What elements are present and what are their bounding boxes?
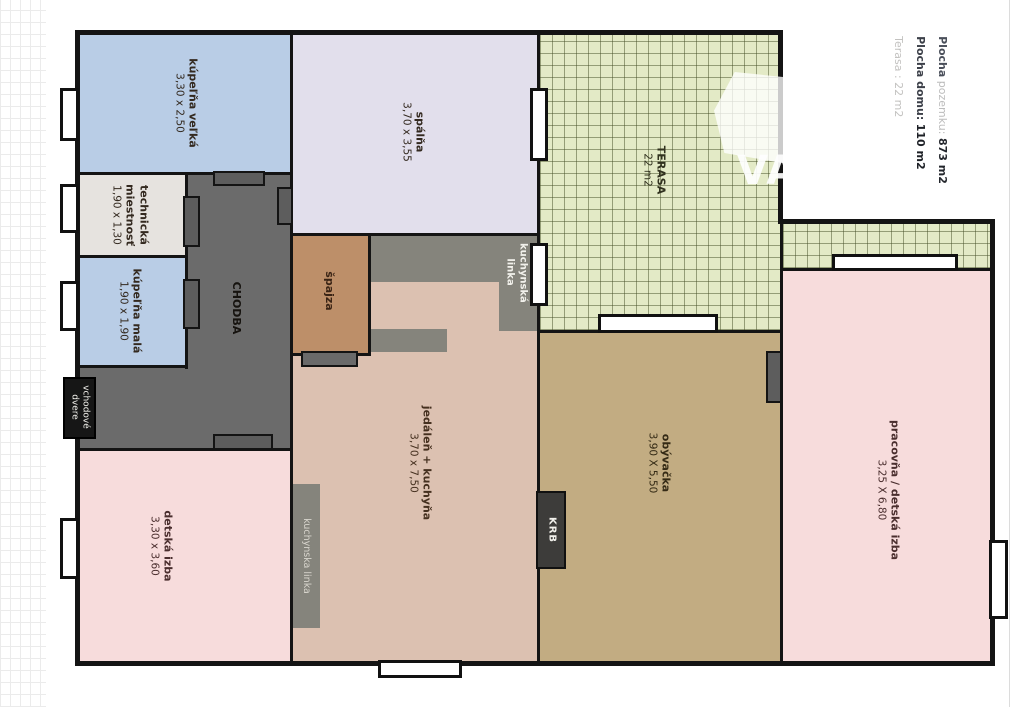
window-detska-izba xyxy=(60,518,79,579)
legend-line-terasa: Terasa : 22 m2 xyxy=(887,36,909,184)
left-margin-grid xyxy=(0,0,46,707)
door-detska-izba xyxy=(213,434,273,450)
label-kuchynska-linka-left: kuchynska linka xyxy=(300,518,312,594)
chodba-join-patch xyxy=(183,369,193,448)
watermark-text: VA xyxy=(737,148,791,194)
label-kupelna-velka: kúpeľňa veľká 3,30 x 2,50 xyxy=(173,58,200,147)
label-kuchynska-linka-top: kuchynská linka xyxy=(504,243,529,301)
wall-strip-top xyxy=(778,219,995,224)
room-obyvacka xyxy=(537,330,783,666)
label-spajza: špajza xyxy=(322,271,336,310)
pantry-shelf xyxy=(301,351,358,367)
label-terasa: TERASA 22 m2 xyxy=(641,146,668,194)
label-detska: detská izba 3,30 x 3,60 xyxy=(148,510,175,581)
kitchen-counter-bar xyxy=(371,329,447,352)
door-spalna xyxy=(277,187,293,225)
legend-line-plocha-domu: Plocha domu: 110 m2 xyxy=(909,36,931,184)
label-pracovna: pracovňa / detská izba 3,25 X 6,80 xyxy=(875,420,902,560)
label-jedalen: jedáleň + kuchyňa 3,70 x 7,50 xyxy=(407,406,434,520)
label-vchodove-dvere: vchodové dvere xyxy=(68,383,91,431)
door-bottom-jedalen xyxy=(378,660,462,678)
window-terasa-obyvacka xyxy=(598,314,718,333)
label-spalna: spálňa 3,70 x 3,55 xyxy=(400,102,427,162)
room-detska-izba xyxy=(75,448,293,666)
legend-line-plocha-pozemku: Plocha pozemku: 873 m2 xyxy=(931,36,953,184)
door-technicka xyxy=(183,196,200,247)
door-obyvacka-pracovna xyxy=(766,351,782,403)
label-chodba: CHODBA xyxy=(229,282,243,335)
legend: Plocha pozemku: 873 m2 Plocha domu: 110 … xyxy=(887,36,953,184)
wall-bottom xyxy=(75,661,995,666)
wall-top xyxy=(75,30,783,35)
label-kupelna-mala: kúpeľňa malá 1,90 x 1,90 xyxy=(117,269,144,354)
window-kupelna-mala xyxy=(60,281,79,331)
window-pracovna-top xyxy=(832,254,958,271)
label-technicka: technická miestnosť 1,90 x 1,30 xyxy=(110,177,151,253)
door-kupelna-mala xyxy=(183,279,200,329)
window-kupelna-velka xyxy=(60,88,79,141)
door-kupelna-velka xyxy=(213,171,265,186)
label-krb: KRB xyxy=(545,517,558,543)
floorplan-page: VA kúpeľňa veľká 3,30 x 2,50 technická m… xyxy=(0,0,1024,707)
right-page-edge xyxy=(1009,0,1010,707)
window-technicka xyxy=(60,184,79,233)
window-pracovna-right xyxy=(989,540,1008,619)
window-spalna-terasa xyxy=(530,88,548,161)
label-obyvacka: obývačka 3,90 X 5,50 xyxy=(646,433,673,494)
door-kuchyna-terasa xyxy=(530,243,548,306)
